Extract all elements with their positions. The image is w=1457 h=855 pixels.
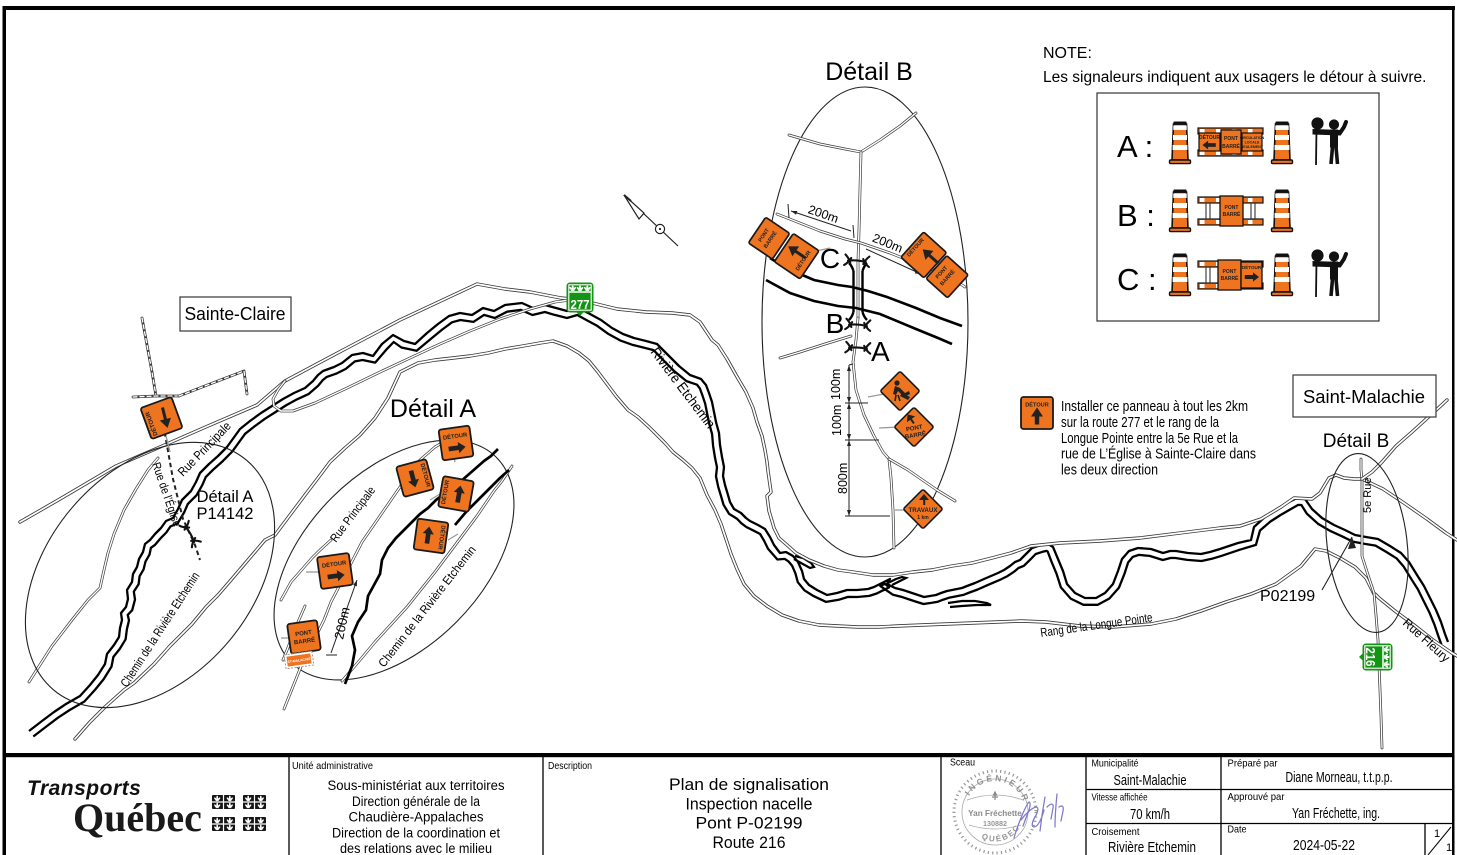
svg-text:Direction générale de la: Direction générale de la — [352, 794, 480, 809]
svg-text:Description: Description — [548, 760, 592, 772]
svg-text:BARRÉ: BARRÉ — [1221, 274, 1239, 282]
svg-text:PONT: PONT — [1223, 269, 1237, 275]
svg-text:Préparé par: Préparé par — [1228, 758, 1278, 770]
svg-text:NOTE:: NOTE: — [1043, 45, 1092, 62]
svg-text:Date: Date — [1228, 824, 1247, 836]
svg-text:100m: 100m — [830, 405, 844, 436]
svg-text:Chaudière-Appalaches: Chaudière-Appalaches — [349, 810, 484, 825]
svg-text:Les signaleurs indiquent aux u: Les signaleurs indiquent aux usagers le … — [1043, 69, 1426, 86]
svg-text:Détail A: Détail A — [390, 395, 476, 423]
svg-text:A: A — [871, 336, 890, 367]
svg-text:Municipalité: Municipalité — [1092, 758, 1139, 770]
svg-text:SEULEMENT: SEULEMENT — [1241, 145, 1264, 149]
svg-text:TRAVAUX: TRAVAUX — [909, 507, 939, 514]
svg-text:PONT: PONT — [1224, 136, 1238, 142]
svg-text:Diane Morneau, t.t.p.p.: Diane Morneau, t.t.p.p. — [1286, 770, 1393, 786]
svg-text:5e Rue: 5e Rue — [1362, 478, 1374, 513]
svg-text:1: 1 — [1434, 828, 1440, 840]
svg-text:70 km/h: 70 km/h — [1130, 807, 1170, 823]
svg-text:LOCALE: LOCALE — [1245, 141, 1260, 145]
svg-text:Détail B: Détail B — [825, 58, 913, 86]
svg-text:Approuvé par: Approuvé par — [1228, 791, 1285, 803]
svg-text:Québec: Québec — [73, 795, 202, 840]
svg-text:130882: 130882 — [983, 819, 1007, 828]
svg-text:277: 277 — [571, 297, 590, 312]
svg-text:Rivière Etchemin: Rivière Etchemin — [1108, 840, 1196, 855]
svg-text:Saint-Malachie: Saint-Malachie — [1303, 387, 1425, 407]
svg-text:Plan de signalisation: Plan de signalisation — [669, 776, 829, 794]
svg-text:P02199: P02199 — [1260, 588, 1315, 605]
svg-text:DÉTOUR: DÉTOUR — [1025, 401, 1049, 409]
svg-text:Détail A: Détail A — [197, 488, 254, 506]
svg-text:216: 216 — [1363, 648, 1378, 667]
svg-text:B: B — [826, 308, 845, 339]
svg-text:100m: 100m — [829, 369, 843, 400]
svg-text:Yan Fréchette: Yan Fréchette — [968, 809, 1022, 818]
svg-text:Saint-Malachie: Saint-Malachie — [1114, 773, 1187, 789]
svg-text:1: 1 — [1446, 842, 1452, 854]
svg-text:DÉTOUR: DÉTOUR — [1199, 133, 1220, 141]
svg-text:Vitesse affichée: Vitesse affichée — [1092, 792, 1148, 804]
svg-text:A :: A : — [1117, 129, 1153, 164]
svg-text:DÉTOUR: DÉTOUR — [1242, 263, 1262, 270]
svg-text:2024-05-22: 2024-05-22 — [1293, 838, 1355, 854]
svg-text:Pont P-02199: Pont P-02199 — [696, 815, 803, 833]
svg-text:B :: B : — [1117, 198, 1155, 233]
svg-text:sur la route 277 et le rang de: sur la route 277 et le rang de la — [1061, 414, 1219, 431]
svg-text:PONT: PONT — [1225, 205, 1239, 211]
svg-text:BARRÉ: BARRÉ — [1223, 210, 1241, 218]
svg-text:les deux direction: les deux direction — [1061, 462, 1158, 479]
svg-text:Sous-ministériat aux territoir: Sous-ministériat aux territoires — [328, 778, 505, 793]
svg-text:Unité administrative: Unité administrative — [292, 760, 373, 772]
svg-text:CIRCULATION: CIRCULATION — [1240, 136, 1265, 140]
svg-text:Sainte-Claire: Sainte-Claire — [185, 304, 286, 324]
svg-text:Sceau: Sceau — [950, 757, 975, 769]
svg-text:C :: C : — [1117, 262, 1157, 297]
svg-text:800m: 800m — [836, 463, 850, 494]
svg-text:Installer ce panneau à tout le: Installer ce panneau à tout les 2km — [1061, 398, 1248, 415]
svg-text:C: C — [820, 243, 840, 274]
svg-text:P14142: P14142 — [197, 505, 254, 523]
svg-text:BARRÉ: BARRÉ — [1222, 142, 1240, 150]
svg-text:Direction de la coordination e: Direction de la coordination et — [332, 825, 500, 840]
svg-text:Yan Fréchette, ing.: Yan Fréchette, ing. — [1292, 806, 1380, 822]
svg-text:Route 216: Route 216 — [713, 834, 786, 852]
svg-text:Croisement: Croisement — [1092, 826, 1140, 838]
svg-text:rue de L’Église à Sainte-Clair: rue de L’Église à Sainte-Claire dans — [1061, 446, 1256, 463]
svg-text:1 km: 1 km — [917, 515, 929, 521]
svg-text:Longue Pointe entre la 5e Rue: Longue Pointe entre la 5e Rue et la — [1061, 430, 1238, 447]
svg-text:Inspection nacelle: Inspection nacelle — [686, 795, 813, 813]
svg-text:Détail B: Détail B — [1323, 431, 1390, 452]
svg-text:des relations avec le milieu: des relations avec le milieu — [340, 841, 492, 855]
